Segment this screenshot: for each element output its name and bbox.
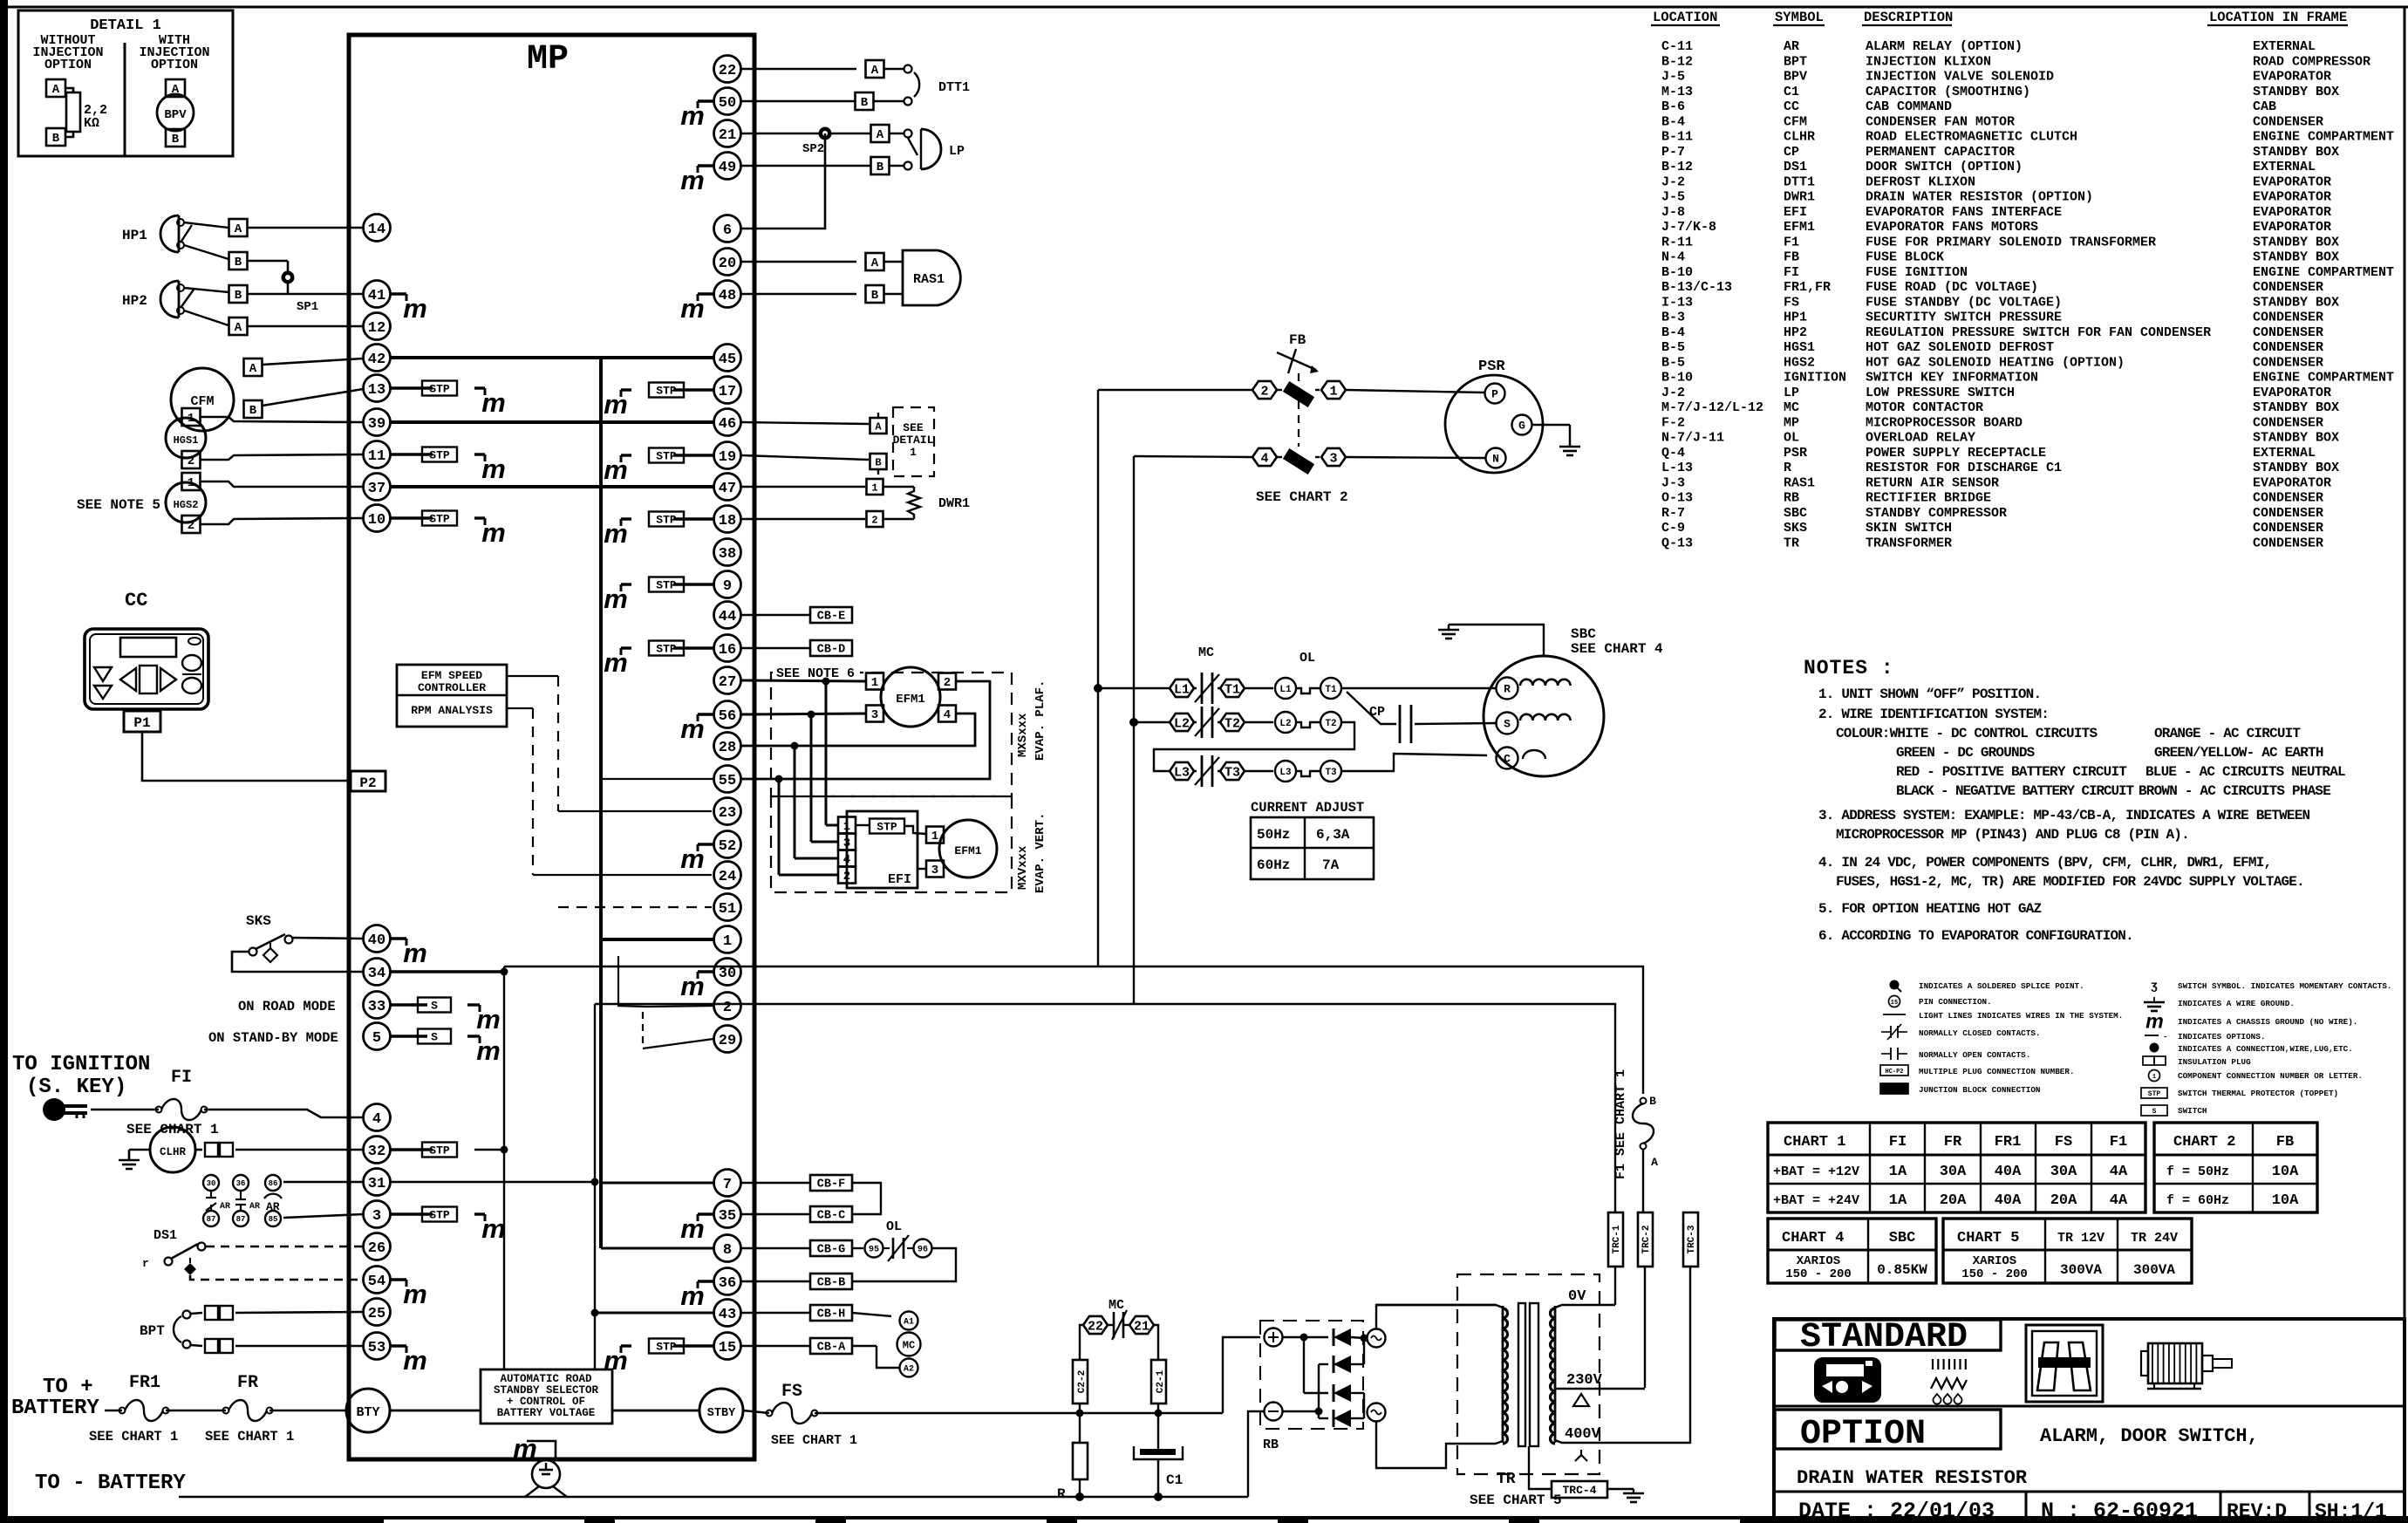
svg-text:50: 50 [719, 95, 736, 112]
svg-text:STP: STP [656, 643, 677, 656]
svg-text:CONDENSER: CONDENSER [2253, 415, 2323, 430]
svg-text:JUNCTION BLOCK CONNECTION: JUNCTION BLOCK CONNECTION [1919, 1085, 2040, 1095]
svg-text:CONDENSER FAN MOTOR: CONDENSER FAN MOTOR [1866, 114, 2015, 129]
svg-text:1A: 1A [1889, 1164, 1907, 1180]
svg-text:C: C [1504, 753, 1511, 766]
svg-text:REV:D: REV:D [2227, 1500, 2287, 1523]
svg-text:HP2: HP2 [122, 293, 147, 309]
svg-text:R: R [1784, 461, 1791, 475]
svg-text:INDICATES A CHASSIS GROUND (NO: INDICATES A CHASSIS GROUND (NO WIRE). [2178, 1017, 2357, 1027]
svg-text:STANDBY BOX: STANDBY BOX [2253, 431, 2339, 446]
svg-text:48: 48 [719, 288, 736, 304]
svg-text:21: 21 [1134, 1320, 1149, 1335]
svg-text:14: 14 [368, 222, 385, 238]
svg-text:2: 2 [871, 514, 877, 526]
svg-text:50Hz: 50Hz [1257, 827, 1290, 843]
svg-text:NORMALLY CLOSED CONTACTS.: NORMALLY CLOSED CONTACTS. [1919, 1028, 2040, 1038]
svg-text:MC: MC [903, 1339, 915, 1351]
svg-text:N-4: N-4 [1661, 250, 1685, 265]
svg-text:L3: L3 [1174, 766, 1190, 781]
svg-text:B-6: B-6 [1661, 99, 1685, 114]
svg-text:20A: 20A [2050, 1192, 2077, 1209]
svg-text:m: m [476, 1035, 501, 1066]
svg-text:BPT: BPT [1784, 54, 1807, 69]
svg-text:BLACK - NEGATIVE BATTERY CIRCU: BLACK - NEGATIVE BATTERY CIRCUIT [1896, 783, 2135, 799]
svg-text:0V: 0V [1568, 1288, 1586, 1305]
svg-text:B: B [861, 96, 869, 110]
svg-text:Q-4: Q-4 [1661, 446, 1685, 461]
svg-text:FUSES, HGS1-2, MC, TR) ARE MOD: FUSES, HGS1-2, MC, TR) ARE MODIFIED FOR … [1836, 874, 2304, 890]
svg-text:CB-H: CB-H [817, 1308, 845, 1322]
svg-text:SWITCH THERMAL PROTECTOR (TOPP: SWITCH THERMAL PROTECTOR (TOPPET) [2178, 1089, 2338, 1098]
svg-text:C1: C1 [1166, 1472, 1183, 1488]
svg-text:ROAD ELECTROMAGNETIC CLUTCH: ROAD ELECTROMAGNETIC CLUTCH [1866, 130, 2077, 145]
svg-text:CB-B: CB-B [817, 1277, 845, 1290]
svg-text:CONDENSER: CONDENSER [2253, 340, 2323, 355]
svg-text:P2: P2 [359, 775, 376, 791]
svg-text:1: 1 [931, 830, 938, 843]
svg-text:B-4: B-4 [1661, 114, 1685, 129]
svg-text:18: 18 [719, 513, 736, 529]
svg-text:MICROPROCESSOR BOARD: MICROPROCESSOR BOARD [1866, 415, 2023, 430]
svg-text:+ CONTROL OF: + CONTROL OF [507, 1396, 585, 1408]
svg-text:PSR: PSR [1784, 446, 1807, 461]
svg-text:EFM SPEED: EFM SPEED [421, 669, 482, 682]
svg-text:GREEN - DC GROUNDS: GREEN - DC GROUNDS [1896, 745, 2036, 761]
svg-text:C-11: C-11 [1661, 39, 1693, 54]
svg-text:P: P [1491, 388, 1498, 401]
svg-text:m: m [680, 293, 705, 324]
svg-text:2: 2 [944, 676, 951, 690]
svg-text:EXTERNAL: EXTERNAL [2253, 39, 2316, 54]
svg-text:INJECTION VALVE SOLENOID: INJECTION VALVE SOLENOID [1866, 70, 2054, 85]
svg-text:36: 36 [719, 1275, 736, 1292]
svg-text:FUSE FOR PRIMARY SOLENOID TRAN: FUSE FOR PRIMARY SOLENOID TRANSFORMER [1866, 235, 2156, 249]
svg-text:SEE NOTE 5: SEE NOTE 5 [77, 497, 160, 513]
svg-text:CONDENSER: CONDENSER [2253, 491, 2323, 506]
svg-text:S: S [431, 1000, 438, 1013]
svg-text:B: B [1649, 1095, 1656, 1108]
svg-text:B-4: B-4 [1661, 325, 1685, 340]
svg-text:m: m [680, 1213, 705, 1244]
svg-text:L1: L1 [1174, 683, 1190, 698]
svg-text:N: N [1492, 453, 1499, 466]
svg-text:HP1: HP1 [1784, 311, 1807, 325]
svg-text:6,3A: 6,3A [1316, 827, 1350, 843]
svg-text:MC: MC [1108, 1298, 1124, 1313]
svg-text:L1: L1 [1279, 685, 1292, 695]
svg-text:CP: CP [1784, 145, 1799, 160]
svg-text:47: 47 [719, 481, 736, 497]
svg-text:OVERLOAD RELAY: OVERLOAD RELAY [1866, 431, 1975, 446]
svg-text:LOW PRESSURE SWITCH: LOW PRESSURE SWITCH [1866, 386, 2015, 400]
svg-text:m: m [403, 938, 427, 968]
svg-text:T3: T3 [1224, 766, 1240, 781]
svg-text:PERMANENT CAPACITOR: PERMANENT CAPACITOR [1866, 145, 2015, 160]
svg-text:L2: L2 [1279, 719, 1291, 729]
svg-text:SWITCH KEY INFORMATION: SWITCH KEY INFORMATION [1866, 371, 2038, 386]
svg-text:1: 1 [2152, 1074, 2156, 1081]
svg-text:CB-D: CB-D [817, 644, 845, 657]
svg-text:CFM: CFM [1784, 114, 1807, 129]
svg-text:CAPACITOR (SMOOTHING): CAPACITOR (SMOOTHING) [1866, 85, 2030, 99]
svg-text:FUSE IGNITION: FUSE IGNITION [1866, 265, 1968, 280]
svg-text:A: A [871, 256, 879, 270]
svg-text:400V: 400V [1565, 1426, 1601, 1443]
svg-text:f = 60Hz: f = 60Hz [2166, 1193, 2229, 1208]
svg-text:44: 44 [719, 609, 736, 625]
svg-text:3: 3 [871, 708, 878, 722]
svg-text:FS: FS [2055, 1134, 2072, 1151]
svg-text:33: 33 [368, 999, 385, 1015]
svg-text:OPTION: OPTION [151, 58, 198, 72]
svg-text:15: 15 [1891, 1000, 1898, 1007]
svg-text:CHART 2: CHART 2 [2173, 1134, 2235, 1151]
svg-text:m: m [2145, 1009, 2164, 1032]
svg-text:40A: 40A [1995, 1192, 2022, 1209]
svg-text:R-11: R-11 [1661, 235, 1693, 249]
svg-text:N : 62-60921: N : 62-60921 [2041, 1499, 2198, 1523]
svg-text:4. IN 24 VDC, POWER COMPONENTS: 4. IN 24 VDC, POWER COMPONENTS (BPV, CFM… [1818, 855, 2271, 871]
svg-text:LP: LP [949, 144, 965, 159]
svg-text:A: A [877, 128, 884, 142]
svg-text:STP: STP [429, 1144, 450, 1158]
svg-text:J-3: J-3 [1661, 475, 1685, 490]
svg-text:AR: AR [249, 1202, 260, 1212]
svg-text:95: 95 [869, 1246, 879, 1255]
svg-text:CAB COMMAND: CAB COMMAND [1866, 99, 1952, 114]
svg-text:B-3: B-3 [1661, 311, 1685, 325]
svg-text:43: 43 [719, 1307, 736, 1323]
svg-text:T1: T1 [1224, 683, 1240, 698]
svg-text:SKIN SWITCH: SKIN SWITCH [1866, 521, 1952, 536]
svg-text:A: A [235, 321, 242, 335]
svg-text:HP1: HP1 [122, 228, 147, 243]
svg-text:EVAPORATOR: EVAPORATOR [2253, 220, 2331, 235]
svg-text:6: 6 [723, 222, 732, 239]
svg-text:STP: STP [656, 385, 677, 398]
svg-text:INJECTION KLIXON: INJECTION KLIXON [1866, 54, 1991, 69]
svg-text:DTT1: DTT1 [1784, 174, 1815, 189]
svg-text:A: A [52, 83, 60, 97]
svg-text:37: 37 [368, 481, 385, 497]
svg-text:J-5: J-5 [1661, 70, 1685, 85]
svg-text:ENGINE COMPARTMENT: ENGINE COMPARTMENT [2253, 371, 2394, 386]
svg-text:EVAPORATOR: EVAPORATOR [2253, 174, 2331, 189]
svg-text:m: m [604, 1345, 628, 1376]
svg-text:4: 4 [372, 1111, 381, 1128]
svg-text:LOCATION IN FRAME: LOCATION IN FRAME [2209, 10, 2347, 25]
svg-text:SECURTITY SWITCH PRESSURE: SECURTITY SWITCH PRESSURE [1866, 311, 2062, 325]
svg-text:RAS1: RAS1 [1784, 475, 1815, 490]
svg-text:OL: OL [1784, 431, 1799, 446]
svg-text:EVAPORATOR: EVAPORATOR [2253, 205, 2331, 220]
svg-text:A2: A2 [904, 1365, 914, 1375]
svg-text:2: 2 [188, 454, 194, 468]
svg-text:HOT GAZ SOLENOID HEATING (OPTI: HOT GAZ SOLENOID HEATING (OPTION) [1866, 355, 2125, 370]
svg-text:38: 38 [719, 546, 736, 563]
svg-text:COLOUR:WHITE - DC CONTROL CIRC: COLOUR:WHITE - DC CONTROL CIRCUITS [1836, 726, 2098, 741]
svg-text:TRC-1: TRC-1 [1612, 1225, 1622, 1253]
svg-text:20: 20 [719, 256, 736, 272]
svg-text:T2: T2 [1224, 717, 1240, 732]
svg-text:1: 1 [871, 481, 877, 494]
svg-text:STANDBY BOX: STANDBY BOX [2253, 400, 2339, 415]
svg-text:m: m [604, 584, 628, 614]
svg-text:P-7: P-7 [1661, 145, 1685, 160]
svg-text:DRAIN WATER RESISTOR: DRAIN WATER RESISTOR [1797, 1467, 2028, 1489]
svg-text:FR: FR [1944, 1134, 1962, 1151]
svg-text:49: 49 [719, 160, 736, 176]
svg-text:DETAIL: DETAIL [893, 434, 934, 447]
svg-text:J-7/K-8: J-7/K-8 [1661, 220, 1716, 235]
svg-text:MP: MP [1784, 415, 1799, 430]
svg-text:39: 39 [368, 416, 385, 433]
svg-text:STP: STP [2148, 1090, 2161, 1098]
svg-text:B: B [249, 404, 257, 418]
svg-text:2: 2 [1260, 385, 1268, 400]
svg-text:B-12: B-12 [1661, 160, 1693, 174]
svg-text:53: 53 [368, 1340, 385, 1356]
svg-text:ON STAND-BY MODE: ON STAND-BY MODE [208, 1030, 338, 1046]
svg-text:CB-A: CB-A [817, 1342, 846, 1355]
svg-text:B-11: B-11 [1661, 130, 1693, 145]
svg-text:AUTOMATIC ROAD: AUTOMATIC ROAD [500, 1373, 592, 1385]
svg-text:SBC: SBC [1889, 1230, 1916, 1246]
svg-text:STBY: STBY [707, 1407, 736, 1420]
svg-text:L3: L3 [1279, 768, 1292, 778]
svg-text:B-5: B-5 [1661, 340, 1685, 355]
svg-text:FS: FS [1784, 295, 1799, 310]
svg-text:FB: FB [1289, 332, 1306, 348]
svg-text:SEE CHART 5: SEE CHART 5 [1470, 1492, 1562, 1508]
svg-text:CC: CC [1784, 99, 1799, 114]
svg-text:55: 55 [719, 773, 736, 789]
svg-text:TR: TR [1497, 1471, 1516, 1488]
svg-text:2: 2 [188, 519, 194, 533]
svg-text:OPTION: OPTION [44, 58, 92, 72]
svg-text:300VA: 300VA [2133, 1262, 2175, 1278]
svg-text:STANDBY COMPRESSOR: STANDBY COMPRESSOR [1866, 506, 2007, 521]
svg-text:DS1: DS1 [1784, 160, 1807, 174]
svg-text:B: B [235, 289, 242, 303]
svg-text:CC: CC [125, 590, 147, 611]
svg-text:R-7: R-7 [1661, 506, 1685, 521]
svg-text:STANDARD: STANDARD [1800, 1318, 1968, 1357]
svg-text:-: - [2163, 1032, 2168, 1042]
svg-text:S: S [1504, 718, 1511, 731]
svg-text:FB: FB [2276, 1134, 2294, 1151]
svg-text:XARIOS: XARIOS [1797, 1254, 1840, 1268]
svg-text:40A: 40A [1995, 1164, 2022, 1180]
svg-text:CHART 5: CHART 5 [1957, 1230, 2019, 1246]
svg-text:BROWN - AC CIRCUITS PHASE: BROWN - AC CIRCUITS PHASE [2139, 783, 2330, 799]
svg-text:87: 87 [236, 1215, 246, 1224]
svg-text:3: 3 [931, 864, 938, 878]
svg-text:4: 4 [944, 708, 951, 722]
svg-text:96: 96 [917, 1246, 928, 1255]
svg-text:S: S [2152, 1108, 2157, 1116]
svg-text:46: 46 [719, 416, 736, 433]
svg-text:INDICATES OPTIONS.: INDICATES OPTIONS. [2178, 1032, 2265, 1042]
svg-text:STANDBY BOX: STANDBY BOX [2253, 461, 2339, 475]
svg-text:PSR: PSR [1478, 359, 1505, 375]
svg-text:MXVxxx: MXVxxx [1016, 845, 1030, 890]
svg-text:1: 1 [1329, 385, 1337, 400]
svg-text:22: 22 [719, 63, 736, 79]
svg-text:HGS1: HGS1 [174, 434, 199, 447]
svg-text:4: 4 [1260, 452, 1268, 467]
svg-text:RAS1: RAS1 [913, 272, 945, 287]
svg-text:CFM: CFM [190, 394, 214, 409]
svg-text:ORANGE - AC CIRCUIT: ORANGE - AC CIRCUIT [2154, 726, 2301, 741]
svg-text:MXSxxx: MXSxxx [1016, 713, 1030, 757]
svg-text:25: 25 [368, 1306, 385, 1322]
svg-text:54: 54 [368, 1274, 385, 1290]
svg-text:1: 1 [188, 412, 194, 426]
svg-text:B-13/C-13: B-13/C-13 [1661, 280, 1732, 295]
svg-text:30: 30 [719, 966, 736, 982]
svg-text:J-2: J-2 [1661, 386, 1685, 400]
svg-text:FR1: FR1 [129, 1373, 160, 1393]
svg-text:CONDENSER: CONDENSER [2253, 325, 2323, 340]
svg-text:30: 30 [207, 1179, 216, 1188]
svg-text:CLHR: CLHR [160, 1146, 187, 1158]
svg-text:SP1: SP1 [297, 300, 318, 314]
svg-text:PIN CONNECTION.: PIN CONNECTION. [1919, 997, 1992, 1007]
svg-text:DEFROST KLIXON: DEFROST KLIXON [1866, 174, 1975, 189]
svg-text:B-10: B-10 [1661, 265, 1693, 280]
svg-text:INDICATES A CONNECTION,WIRE,LU: INDICATES A CONNECTION,WIRE,LUG,ETC. [2178, 1044, 2353, 1054]
svg-text:L-13: L-13 [1661, 461, 1693, 475]
svg-text:BLUE - AC CIRCUITS NEUTRAL: BLUE - AC CIRCUITS NEUTRAL [2145, 764, 2345, 780]
svg-text:11: 11 [368, 448, 385, 465]
svg-text:A1: A1 [904, 1318, 914, 1328]
svg-text:CONDENSER: CONDENSER [2253, 506, 2323, 521]
svg-text:SBC: SBC [1784, 506, 1807, 521]
svg-text:CONDENSER: CONDENSER [2253, 355, 2323, 370]
svg-text:HC-P2: HC-P2 [1885, 1069, 1903, 1076]
svg-text:F1: F1 [2110, 1134, 2127, 1151]
svg-text:J-5: J-5 [1661, 190, 1685, 205]
svg-text:15: 15 [719, 1340, 736, 1356]
svg-text:HGS2: HGS2 [1784, 355, 1815, 370]
svg-text:10: 10 [368, 512, 385, 529]
svg-text:ALARM, DOOR SWITCH,: ALARM, DOOR SWITCH, [2040, 1425, 2259, 1447]
svg-text:KΩ: KΩ [84, 116, 99, 131]
svg-text:m: m [680, 971, 705, 1001]
svg-text:INDICATES A WIRE GROUND.: INDICATES A WIRE GROUND. [2178, 999, 2295, 1008]
svg-text:TO +: TO + [43, 1376, 93, 1399]
svg-text:STANDBY SELECTOR: STANDBY SELECTOR [494, 1384, 599, 1397]
svg-text:35: 35 [719, 1208, 736, 1225]
svg-text:m: m [513, 1433, 537, 1464]
svg-text:87: 87 [207, 1215, 216, 1224]
svg-text:DESCRIPTION: DESCRIPTION [1864, 10, 1953, 25]
svg-text:CONDENSER: CONDENSER [2253, 536, 2323, 550]
svg-text:34: 34 [368, 966, 385, 982]
svg-text:7: 7 [723, 1177, 732, 1193]
svg-text:CONDENSER: CONDENSER [2253, 114, 2323, 129]
svg-text:CP: CP [1369, 705, 1385, 720]
svg-text:60Hz: 60Hz [1257, 857, 1290, 873]
svg-text:FUSE ROAD (DC VOLTAGE): FUSE ROAD (DC VOLTAGE) [1866, 280, 2038, 295]
svg-text:L2: L2 [1174, 717, 1190, 732]
svg-text:SKS: SKS [246, 913, 271, 929]
svg-text:NORMALLY OPEN CONTACTS.: NORMALLY OPEN CONTACTS. [1919, 1050, 2030, 1060]
svg-text:I-13: I-13 [1661, 295, 1693, 310]
svg-text:SYMBOL: SYMBOL [1775, 10, 1824, 25]
svg-text:INDICATES A SOLDERED SPLICE PO: INDICATES A SOLDERED SPLICE POINT. [1919, 981, 2084, 991]
svg-text:TR 12V: TR 12V [2057, 1231, 2104, 1246]
svg-text:RETURN AIR SENSOR: RETURN AIR SENSOR [1866, 475, 1999, 490]
svg-text:DRAIN WATER RESISTOR (OPTION): DRAIN WATER RESISTOR (OPTION) [1866, 190, 2093, 205]
svg-text:29: 29 [719, 1033, 736, 1049]
svg-text:MOTOR CONTACTOR: MOTOR CONTACTOR [1866, 400, 1983, 415]
svg-text:TRANSFORMER: TRANSFORMER [1866, 536, 1952, 550]
svg-text:B: B [235, 256, 242, 270]
svg-text:m: m [604, 647, 628, 678]
svg-text:MC: MC [1198, 645, 1214, 660]
svg-text:Q-13: Q-13 [1661, 536, 1693, 550]
svg-text:B: B [877, 160, 884, 174]
svg-text:NOTES :: NOTES : [1804, 657, 1894, 680]
svg-text:STP: STP [429, 449, 450, 462]
svg-text:3: 3 [1329, 452, 1337, 467]
svg-text:3: 3 [843, 837, 850, 850]
svg-text:EXTERNAL: EXTERNAL [2253, 160, 2316, 174]
svg-text:J-2: J-2 [1661, 174, 1685, 189]
svg-text:28: 28 [719, 740, 736, 756]
svg-text:22: 22 [1088, 1320, 1103, 1335]
svg-text:EVAPORATOR FANS MOTORS: EVAPORATOR FANS MOTORS [1866, 220, 2038, 235]
svg-text:B-10: B-10 [1661, 371, 1693, 386]
svg-text:SEE CHART 1: SEE CHART 1 [126, 1122, 219, 1137]
svg-text:EVAPORATOR: EVAPORATOR [2253, 386, 2331, 400]
svg-text:30A: 30A [1940, 1164, 1967, 1180]
svg-text:27: 27 [719, 674, 736, 691]
svg-text:STANDBY BOX: STANDBY BOX [2253, 145, 2339, 160]
svg-text:0.85KW: 0.85KW [1877, 1262, 1927, 1278]
svg-text:MICROPROCESSOR MP (PIN43) AND: MICROPROCESSOR MP (PIN43) AND PLUG C8 (P… [1836, 827, 2189, 843]
svg-text:86: 86 [269, 1179, 278, 1188]
svg-text:REGULATION PRESSURE SWITCH FOR: REGULATION PRESSURE SWITCH FOR FAN CONDE… [1866, 325, 2211, 340]
svg-text:CB-C: CB-C [817, 1210, 845, 1223]
svg-text:MP: MP [527, 40, 569, 79]
svg-text:26: 26 [368, 1240, 385, 1257]
svg-text:BATTERY: BATTERY [11, 1397, 99, 1420]
svg-text:STP: STP [429, 1209, 450, 1222]
svg-text:ROAD COMPRESSOR: ROAD COMPRESSOR [2253, 54, 2370, 69]
svg-text:1. UNIT SHOWN “OFF” POSITION.: 1. UNIT SHOWN “OFF” POSITION. [1818, 686, 2041, 702]
svg-text:ENGINE COMPARTMENT: ENGINE COMPARTMENT [2253, 265, 2394, 280]
svg-text:RB: RB [1263, 1438, 1279, 1452]
svg-text:SKS: SKS [1784, 521, 1807, 536]
svg-text:5. FOR OPTION HEATING HOT GAZ: 5. FOR OPTION HEATING HOT GAZ [1818, 901, 2041, 917]
svg-text:EVAPORATOR: EVAPORATOR [2253, 70, 2331, 85]
svg-text:SEE CHART 1: SEE CHART 1 [205, 1429, 294, 1444]
svg-text:DATE : 22/01/03: DATE : 22/01/03 [1798, 1499, 1995, 1523]
svg-text:J-8: J-8 [1661, 205, 1685, 220]
svg-text:CAB: CAB [2253, 99, 2276, 114]
svg-text:A: A [871, 64, 879, 78]
svg-text:EFI: EFI [1784, 205, 1807, 220]
svg-text:STP: STP [656, 579, 677, 592]
svg-text:B-5: B-5 [1661, 355, 1685, 370]
svg-text:A: A [1651, 1156, 1658, 1169]
svg-text:AR: AR [220, 1202, 230, 1212]
svg-text:B: B [871, 289, 879, 303]
